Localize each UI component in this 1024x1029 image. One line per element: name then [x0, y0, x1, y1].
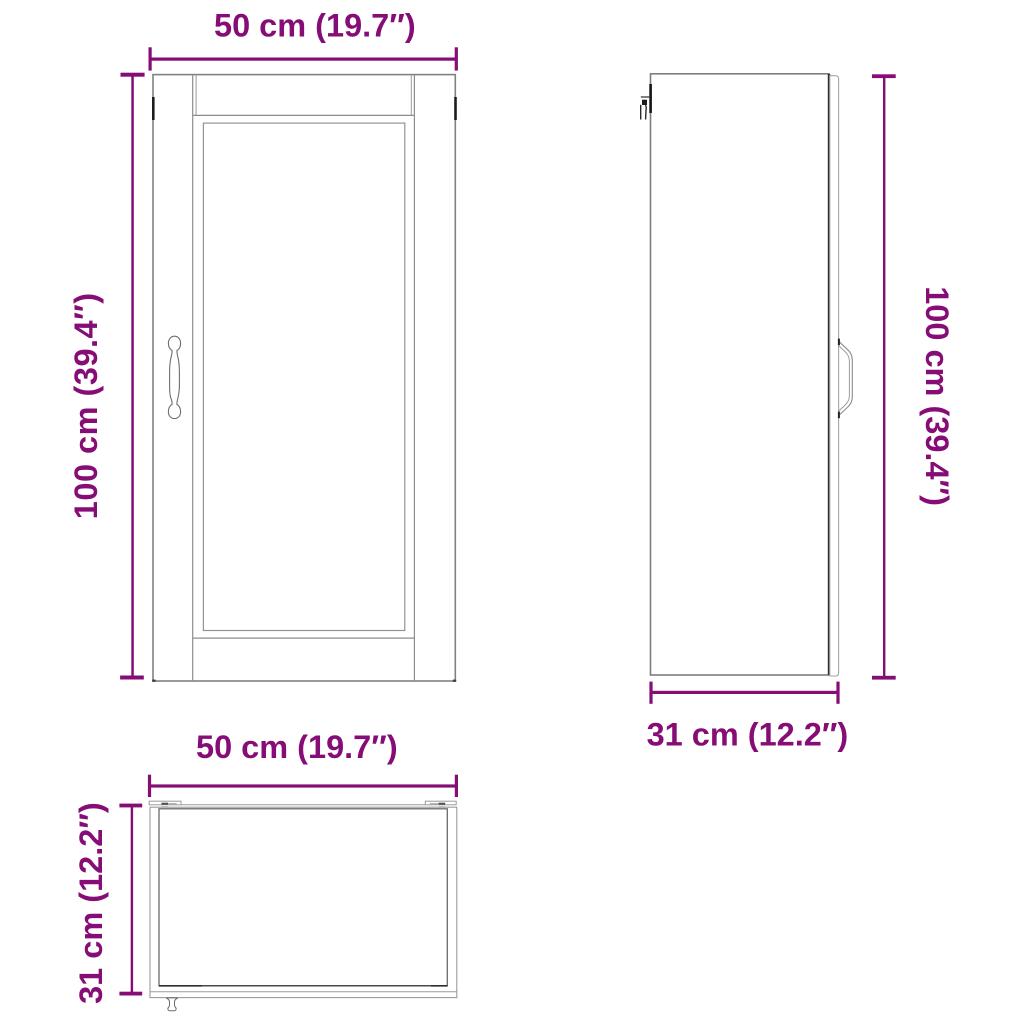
svg-text:31 cm (12.2″): 31 cm (12.2″)	[73, 802, 109, 1004]
svg-text:50 cm (19.7″): 50 cm (19.7″)	[196, 729, 398, 765]
svg-text:31 cm (12.2″): 31 cm (12.2″)	[647, 717, 849, 753]
svg-text:100 cm (39.4″): 100 cm (39.4″)	[68, 292, 104, 519]
svg-text:100 cm (39.4″): 100 cm (39.4″)	[919, 286, 955, 506]
svg-text:50 cm (19.7″): 50 cm (19.7″)	[214, 8, 416, 44]
